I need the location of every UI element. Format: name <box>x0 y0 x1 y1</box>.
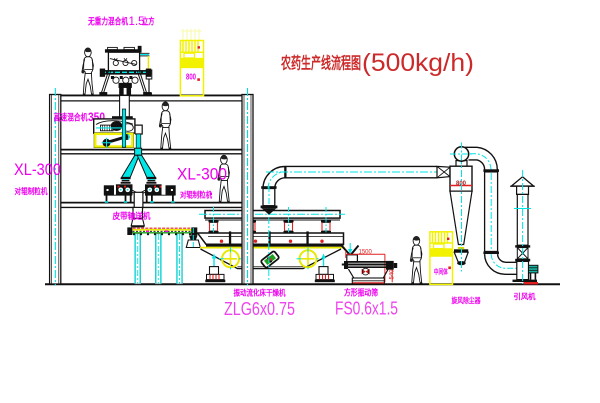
svg-text:立方: 立方 <box>142 16 155 27</box>
svg-text:农药生产线流程图: 农药生产线流程图 <box>280 54 361 73</box>
svg-text:(500kg/h): (500kg/h) <box>362 49 474 77</box>
svg-text:对辊制粒机: 对辊制粒机 <box>180 190 212 200</box>
svg-text:旋风除尘器: 旋风除尘器 <box>451 295 481 305</box>
svg-text:对辊制粒机: 对辊制粒机 <box>15 186 48 196</box>
svg-text:XL-300: XL-300 <box>14 161 61 179</box>
svg-text:高速混合机: 高速混合机 <box>54 112 88 123</box>
svg-text:振动流化床干燥机: 振动流化床干燥机 <box>234 287 286 297</box>
svg-text:ZLG6x0.75: ZLG6x0.75 <box>224 299 295 319</box>
svg-text:中间体: 中间体 <box>434 267 449 276</box>
svg-text:皮带输送机: 皮带输送机 <box>112 211 151 221</box>
svg-text:540: 540 <box>390 269 396 280</box>
svg-text:无重力混合机: 无重力混合机 <box>87 16 128 27</box>
svg-text:FS0.6x1.5: FS0.6x1.5 <box>335 299 398 319</box>
svg-text:引风机: 引风机 <box>514 291 536 301</box>
svg-text:1500: 1500 <box>359 250 373 256</box>
svg-text:800: 800 <box>186 72 196 81</box>
svg-text:XL-300: XL-300 <box>177 165 227 183</box>
svg-text:方形振动筛: 方形振动筛 <box>344 287 378 297</box>
